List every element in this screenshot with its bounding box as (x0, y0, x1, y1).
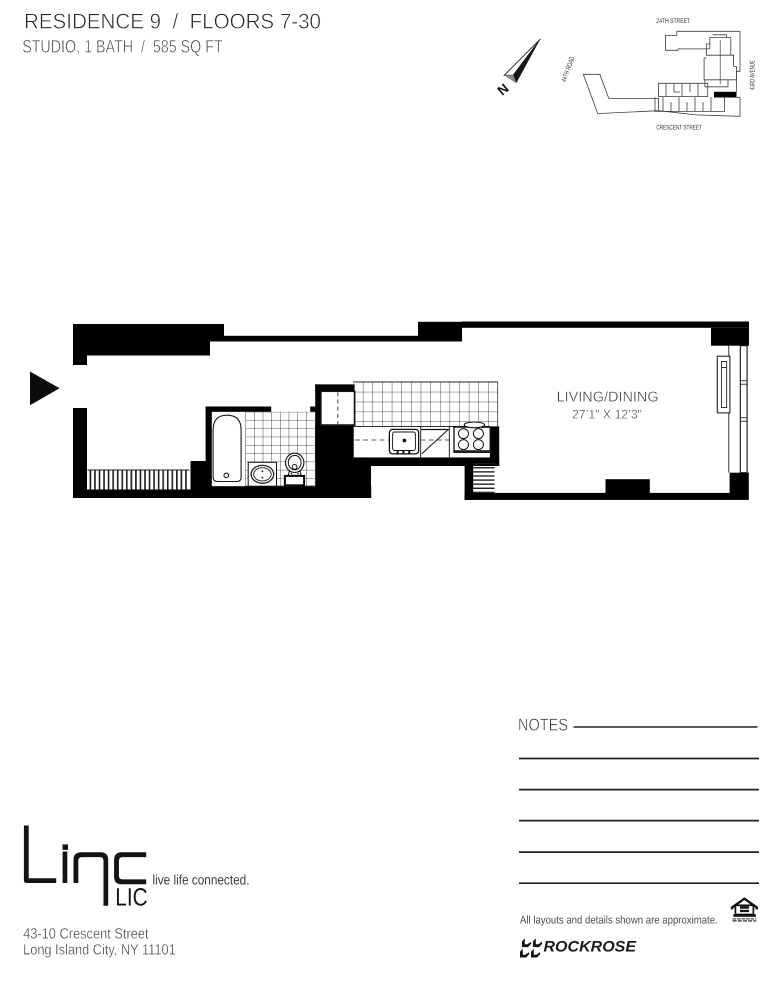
svg-text:N: N (494, 81, 511, 99)
svg-text:All layouts and details shown: All layouts and details shown are approx… (520, 915, 718, 927)
svg-text:Long Island City, NY 11101: Long Island City, NY 11101 (23, 943, 176, 959)
svg-text:RESIDENCE 9 / FLOORS 7-30: RESIDENCE 9 / FLOORS 7-30 (24, 10, 321, 34)
svg-text:43-10 Crescent Street: 43-10 Crescent Street (23, 927, 149, 943)
svg-text:NOTES: NOTES (518, 714, 568, 734)
svg-text:27’1" X 12’3": 27’1" X 12’3" (572, 407, 642, 421)
svg-text:ROCKROSE: ROCKROSE (544, 939, 637, 956)
svg-text:24TH STREET: 24TH STREET (656, 18, 690, 25)
svg-text:44TH ROAD: 44TH ROAD (561, 56, 577, 83)
svg-text:live life connected.: live life connected. (153, 872, 250, 887)
svg-text:CRESCENT STREET: CRESCENT STREET (656, 125, 701, 132)
svg-text:LIVING/DINING: LIVING/DINING (557, 389, 659, 405)
svg-text:STUDIO, 1 BATH / 585 SQ FT: STUDIO, 1 BATH / 585 SQ FT (22, 36, 223, 56)
svg-text:LIC: LIC (115, 884, 147, 912)
svg-text:43RD AVENUE: 43RD AVENUE (750, 60, 757, 90)
